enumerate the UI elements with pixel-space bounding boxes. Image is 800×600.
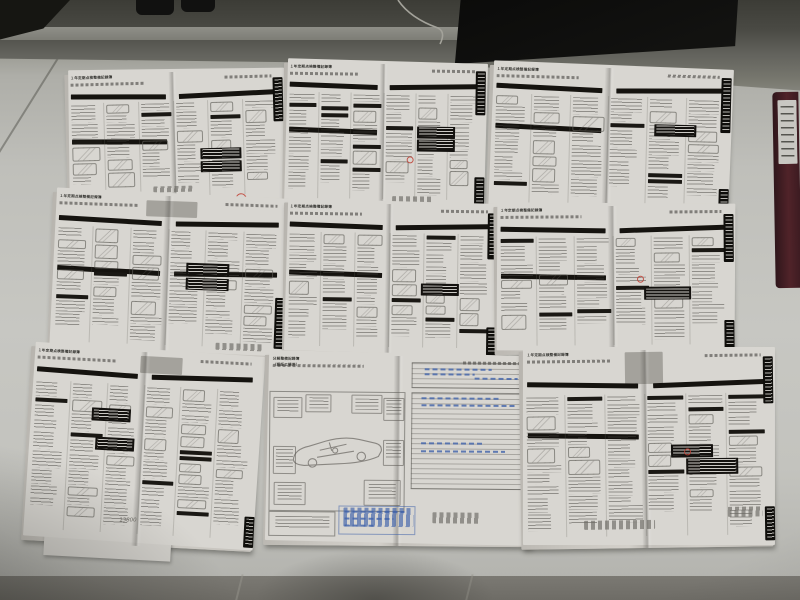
sub-header-bar <box>180 450 212 456</box>
item-text-lines <box>289 128 308 135</box>
sub-header-bar <box>323 297 352 301</box>
item-text-lines <box>392 251 420 268</box>
shelf-object-icon <box>181 0 215 12</box>
sub-header-bar <box>692 248 725 252</box>
item-text-lines <box>528 514 551 531</box>
part-sketch-icon <box>649 455 672 467</box>
item-text-lines <box>146 387 170 405</box>
item-text-lines <box>206 292 225 310</box>
item-text-lines <box>539 319 566 329</box>
sheet-subtitle-line <box>71 82 144 87</box>
checklist-column <box>89 227 131 344</box>
item-text-lines <box>610 161 629 168</box>
checklist-column <box>69 103 105 199</box>
sheet-header-right-line <box>226 203 278 208</box>
checklist-column <box>319 232 355 346</box>
sheet-subtitle-line <box>59 201 139 207</box>
item-text-lines <box>391 317 417 328</box>
label-box-text <box>94 409 129 420</box>
checklist-columns <box>26 379 254 540</box>
header-mini-table <box>412 362 527 390</box>
item-text-lines <box>242 328 272 343</box>
checklist-column <box>103 102 140 198</box>
item-text-lines <box>687 164 714 172</box>
item-text-lines <box>654 322 685 339</box>
part-sketch-icon <box>353 151 377 165</box>
item-text-lines <box>55 300 84 311</box>
sheet-title: １年定期点検整備記録簿 <box>290 205 332 209</box>
checklist-column <box>645 393 687 536</box>
sub-header-bar <box>177 511 209 517</box>
item-text-lines <box>495 125 520 139</box>
item-text-lines <box>130 317 161 325</box>
item-text-lines <box>168 290 197 305</box>
diagram-callout-box <box>273 397 302 418</box>
checklist-column <box>126 228 168 345</box>
callout-text-lines <box>309 398 328 409</box>
index-tab <box>763 356 774 404</box>
item-text-lines <box>570 180 597 198</box>
item-text-lines <box>109 385 128 403</box>
item-text-lines <box>182 415 209 423</box>
section-header-band <box>290 221 383 230</box>
part-sketch-icon <box>648 442 671 453</box>
label-box <box>92 408 131 423</box>
item-text-lines <box>578 316 606 323</box>
item-text-lines <box>289 109 307 126</box>
item-text-lines <box>357 267 378 277</box>
part-sketch-icon <box>132 254 162 266</box>
part-sketch-icon <box>687 144 718 154</box>
item-text-lines <box>358 248 375 265</box>
section-header-band <box>152 375 253 383</box>
item-text-lines <box>608 460 635 467</box>
sub-header-bar <box>648 173 682 178</box>
part-sketch-icon <box>568 460 600 475</box>
item-text-lines <box>324 246 346 263</box>
item-text-lines <box>143 168 170 179</box>
sub-header-bar <box>391 298 420 302</box>
item-text-lines <box>648 186 669 200</box>
item-text-lines <box>539 262 560 272</box>
item-text-lines <box>611 98 642 112</box>
item-text-lines <box>323 303 347 314</box>
item-text-lines <box>568 496 597 510</box>
item-text-lines <box>31 451 61 470</box>
part-sketch-icon <box>218 429 239 444</box>
item-text-lines <box>527 432 559 446</box>
item-text-lines <box>106 115 126 122</box>
sub-header-bar <box>611 123 645 128</box>
item-text-lines <box>533 125 556 139</box>
item-text-lines <box>178 486 209 498</box>
item-text-lines <box>527 465 561 472</box>
item-text-lines <box>689 426 712 443</box>
part-sketch-icon <box>534 112 560 124</box>
label-box-text <box>97 439 132 450</box>
checklist-column <box>564 394 606 537</box>
sheet-header-right-line <box>667 75 720 79</box>
part-sketch-icon <box>179 463 201 473</box>
label-box-text <box>419 141 453 150</box>
item-text-lines <box>323 315 346 329</box>
label-box <box>417 139 455 151</box>
sub-header-bar <box>578 309 611 313</box>
item-text-lines <box>687 155 718 163</box>
maintenance-worksheet: 分解整備記録簿（認証工場用） <box>263 355 533 547</box>
item-text-lines <box>215 479 234 497</box>
section-header-band <box>179 89 274 99</box>
section-header-band <box>290 82 378 90</box>
label-box <box>417 126 455 138</box>
label-box <box>671 444 713 457</box>
item-text-lines <box>501 303 528 313</box>
part-sketch-icon <box>73 163 97 176</box>
index-tab <box>723 214 733 262</box>
bottom-row-text <box>275 516 329 530</box>
sub-header-bar <box>539 312 572 316</box>
sub-header-bar <box>94 271 127 276</box>
inspection-sheet-6: １年定期点検整備記録簿 <box>493 205 732 355</box>
handwritten-entry-blue <box>424 368 492 371</box>
sub-header-bar <box>180 456 212 462</box>
item-text-lines <box>615 268 638 275</box>
item-text-lines <box>289 254 316 261</box>
item-text-lines <box>568 477 600 494</box>
item-text-lines <box>460 245 483 262</box>
item-text-lines <box>534 96 559 110</box>
sheet-subtitle-line <box>497 74 579 79</box>
part-sketch-icon <box>459 298 479 311</box>
checklist-column <box>606 96 647 208</box>
checklist-columns <box>69 98 279 198</box>
part-sketch-icon <box>501 315 526 330</box>
sub-header-bar <box>141 112 171 117</box>
item-text-lines <box>143 452 164 460</box>
item-text-lines <box>214 507 239 525</box>
index-tab <box>475 71 486 115</box>
checklist-column <box>353 232 389 346</box>
sheet-subtitle-line <box>501 215 582 219</box>
index-tab <box>724 320 734 348</box>
sub-header-bar <box>211 114 241 119</box>
part-sketch-icon <box>654 253 681 263</box>
item-text-lines <box>357 328 377 338</box>
item-text-lines <box>321 141 343 148</box>
item-text-lines <box>30 485 57 497</box>
label-box-text <box>656 126 695 136</box>
item-text-lines <box>729 401 757 415</box>
item-text-lines <box>494 156 513 170</box>
bottom-row-box <box>269 511 336 536</box>
index-tab-text <box>245 519 253 546</box>
item-text-lines <box>567 422 597 429</box>
label-box <box>654 124 697 137</box>
sheet-title: １年定期点検整備記録簿 <box>526 353 568 357</box>
diagram-callout-box <box>383 440 404 466</box>
checklist-columns <box>498 235 727 347</box>
sheet-header-right-line <box>441 210 488 214</box>
item-text-lines <box>610 149 636 160</box>
item-text-lines <box>177 144 196 161</box>
item-text-lines <box>688 394 722 405</box>
item-text-lines <box>72 124 99 138</box>
part-sketch-icon <box>179 474 202 486</box>
part-sketch-icon <box>532 168 555 182</box>
sheet-title: 分解整備記録簿 <box>273 357 300 361</box>
part-sketch-icon <box>243 304 271 314</box>
item-text-lines <box>141 487 164 498</box>
item-text-lines <box>610 130 632 148</box>
part-sketch-icon <box>94 260 118 269</box>
part-sketch-icon <box>181 436 205 449</box>
index-tab-text <box>725 216 732 260</box>
item-text-lines <box>104 489 128 507</box>
part-sketch-icon <box>391 284 416 296</box>
handwriting-scribble <box>584 520 655 530</box>
item-text-lines <box>353 174 370 191</box>
part-sketch-icon <box>615 237 636 246</box>
item-text-lines <box>653 237 682 251</box>
checklist-column <box>574 236 613 346</box>
checklist-column <box>317 92 351 199</box>
item-text-lines <box>450 151 468 158</box>
label-box-text <box>646 288 689 298</box>
item-text-lines <box>219 410 242 428</box>
sheet-subtitle-line <box>290 212 362 216</box>
item-text-lines <box>567 403 593 420</box>
section-header-band <box>71 94 166 99</box>
section-header-band <box>396 224 489 230</box>
part-sketch-icon <box>729 436 758 446</box>
item-text-lines <box>459 283 486 297</box>
item-text-lines <box>93 318 118 326</box>
inspection-sheet-1: １年定期点検整備記録簿 <box>64 69 283 207</box>
inspection-table <box>411 392 526 490</box>
item-text-lines <box>321 120 339 130</box>
handwriting-note <box>432 512 480 524</box>
item-text-lines <box>528 498 548 512</box>
section-header-band <box>59 215 162 226</box>
sub-header-bar <box>386 127 413 131</box>
part-sketch-icon <box>247 171 268 180</box>
item-text-lines <box>450 105 472 122</box>
item-text-lines <box>289 263 306 270</box>
item-text-lines <box>692 292 712 302</box>
item-text-lines <box>205 320 232 335</box>
diagram-callout-box <box>364 480 401 506</box>
item-text-lines <box>688 100 718 114</box>
sheet-header-right-line <box>705 353 760 357</box>
item-text-lines <box>450 96 475 103</box>
photo-scene: １年定期点検整備記録簿１年定期点検整備記録簿１年定期点検整備記録簿１年定期点検整… <box>0 0 800 600</box>
item-text-lines <box>353 125 377 142</box>
item-text-lines <box>321 132 344 139</box>
item-text-lines <box>215 498 239 506</box>
label-box <box>201 160 242 173</box>
checklist-column <box>524 395 565 538</box>
sub-header-bar <box>494 181 528 186</box>
item-text-lines <box>609 170 629 187</box>
item-text-lines <box>130 326 155 340</box>
part-sketch-icon <box>210 101 233 112</box>
handwriting-note <box>216 343 263 352</box>
inspection-sheet-7: １年定期点検整備記録簿13800 <box>21 346 261 552</box>
index-tab-text <box>477 73 485 113</box>
part-sketch-icon <box>95 245 118 259</box>
item-text-lines <box>692 255 720 262</box>
item-text-lines <box>392 235 417 249</box>
handwriting-scribble <box>344 508 414 528</box>
item-text-lines <box>607 396 635 403</box>
diagram-callout-box <box>383 398 404 421</box>
handwriting-text: 13800 <box>119 518 149 523</box>
item-text-lines <box>692 264 716 281</box>
sub-header-bar <box>648 396 684 400</box>
item-text-lines <box>608 436 637 443</box>
checklist-column <box>286 231 321 345</box>
part-sketch-icon <box>132 267 159 280</box>
item-text-lines <box>649 495 674 512</box>
item-text-lines <box>567 431 587 445</box>
checklist-columns <box>52 225 281 348</box>
item-text-lines <box>730 490 761 507</box>
part-sketch-icon <box>130 300 155 316</box>
item-text-lines <box>107 124 136 138</box>
item-text-lines <box>357 279 377 296</box>
handwriting-note <box>727 507 762 517</box>
item-text-lines <box>692 313 717 323</box>
part-sketch-icon <box>572 116 604 131</box>
item-text-lines <box>246 124 265 138</box>
part-sketch-icon <box>106 455 135 467</box>
section-header-band <box>37 367 138 380</box>
item-text-lines <box>611 114 631 121</box>
part-sketch-icon <box>501 280 532 289</box>
section-header-band <box>653 379 764 388</box>
part-sketch-icon <box>93 287 116 298</box>
sub-header-bar <box>729 429 765 433</box>
sheet-title: １年定期点検整備記録簿 <box>38 348 80 354</box>
item-text-lines <box>141 103 169 111</box>
item-text-lines <box>246 140 275 154</box>
inspection-sheet-2: １年定期点検整備記録簿 <box>282 63 484 210</box>
item-text-lines <box>654 265 685 275</box>
item-text-lines <box>67 497 90 505</box>
shelf-object-icon <box>136 0 174 15</box>
handwritten-entry-blue <box>475 378 518 380</box>
item-text-lines <box>31 470 52 485</box>
item-text-lines <box>577 284 607 298</box>
part-sketch-icon <box>449 160 468 169</box>
label-box <box>686 458 738 475</box>
item-text-lines <box>539 247 567 261</box>
item-text-lines <box>692 304 724 311</box>
item-text-lines <box>290 233 315 244</box>
label-box <box>200 147 241 160</box>
item-text-lines <box>577 247 597 264</box>
item-text-lines <box>208 241 229 259</box>
item-text-lines <box>571 145 600 159</box>
item-text-lines <box>56 281 81 292</box>
item-text-lines <box>322 94 341 104</box>
sheet-subtitle-line <box>37 355 115 362</box>
part-sketch-icon <box>142 140 168 151</box>
part-sketch-icon <box>245 268 273 278</box>
item-text-lines <box>170 231 190 249</box>
item-text-lines <box>72 383 92 398</box>
sub-header-bar <box>72 140 102 145</box>
item-text-lines <box>526 397 558 414</box>
part-sketch-icon <box>176 130 203 143</box>
part-sketch-icon <box>496 95 518 105</box>
item-text-lines <box>648 402 676 413</box>
item-text-lines <box>170 250 192 261</box>
label-box-text <box>688 459 736 473</box>
part-sketch-icon <box>177 499 206 510</box>
item-text-lines <box>176 111 197 129</box>
item-text-lines <box>211 121 233 139</box>
label-box-text <box>423 285 457 295</box>
part-sketch-icon <box>56 269 84 280</box>
part-sketch-icon <box>183 389 206 402</box>
part-sketch-icon <box>527 416 557 431</box>
section-header-band <box>617 89 723 94</box>
item-text-lines <box>289 296 317 307</box>
item-text-lines <box>30 497 54 505</box>
item-text-lines <box>206 311 231 319</box>
item-text-lines <box>648 427 673 441</box>
checklist-column <box>567 95 608 207</box>
worksheet-subtitle: （認証工場用） <box>273 363 300 367</box>
callout-text-lines <box>276 449 293 467</box>
part-sketch-icon <box>449 171 468 186</box>
item-text-lines <box>616 308 645 325</box>
handwriting-note <box>344 508 414 528</box>
item-text-lines <box>289 156 309 170</box>
diagram-callout-box <box>274 482 306 505</box>
part-sketch-icon <box>108 172 135 187</box>
sheet-header-right-line <box>670 210 722 213</box>
part-sketch-icon <box>567 447 590 459</box>
item-text-lines <box>418 95 436 105</box>
item-text-lines <box>71 105 95 123</box>
label-box <box>644 287 691 300</box>
item-text-lines <box>501 264 533 278</box>
item-text-lines <box>58 227 82 238</box>
item-text-lines <box>288 172 305 189</box>
handwriting-note <box>584 520 655 530</box>
item-text-lines <box>244 289 274 304</box>
index-tab <box>243 517 255 549</box>
part-sketch-icon <box>527 448 555 463</box>
item-text-lines <box>426 242 451 253</box>
part-sketch-icon <box>324 234 345 244</box>
red-stamp-icon <box>684 448 691 455</box>
part-sketch-icon <box>216 469 243 479</box>
sub-header-bar <box>459 329 488 333</box>
inspection-sheet-5: １年定期点検整備記録簿 <box>282 203 496 358</box>
part-sketch-icon <box>67 486 98 497</box>
item-text-lines <box>68 455 98 470</box>
checklist-column <box>52 225 93 342</box>
item-text-lines <box>357 319 376 326</box>
cable-wire <box>380 0 460 50</box>
sub-header-bar <box>353 167 380 171</box>
label-box <box>421 283 459 296</box>
part-sketch-icon <box>145 406 173 418</box>
sheet-subtitle-line <box>290 72 358 76</box>
